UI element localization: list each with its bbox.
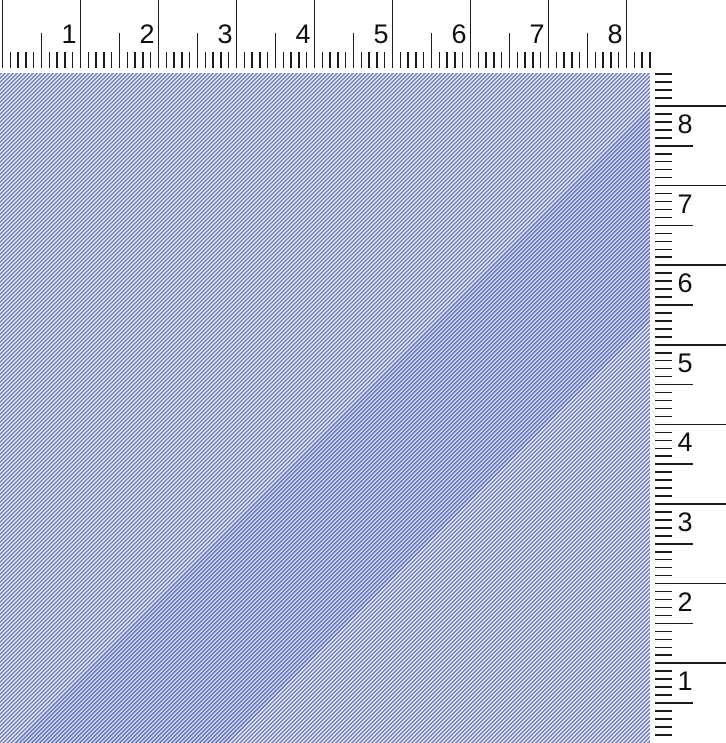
- horizontal-ruler-tick: [610, 52, 612, 68]
- vertical-ruler-tick: [655, 360, 672, 362]
- vertical-ruler-tick: [655, 615, 672, 617]
- vertical-ruler-tick: [655, 288, 672, 290]
- vertical-ruler-tick: [655, 551, 672, 553]
- vertical-ruler-tick: [655, 487, 672, 489]
- horizontal-ruler-number-6: 6: [422, 20, 467, 48]
- vertical-ruler-tick: [655, 121, 672, 123]
- horizontal-ruler-tick: [454, 52, 456, 68]
- horizontal-ruler-tick: [618, 52, 620, 68]
- horizontal-ruler-tick: [524, 52, 526, 68]
- vertical-ruler-tick: [655, 718, 672, 720]
- horizontal-ruler-tick: [158, 0, 160, 68]
- vertical-ruler-tick: [655, 352, 672, 354]
- horizontal-ruler-tick: [251, 52, 253, 68]
- vertical-ruler-tick: [655, 97, 672, 99]
- screen: 12345678 87654321: [0, 0, 726, 743]
- horizontal-ruler-tick: [556, 52, 558, 68]
- vertical-ruler-tick: [655, 463, 693, 465]
- horizontal-ruler-tick: [259, 52, 261, 68]
- horizontal-ruler-tick: [166, 52, 168, 68]
- horizontal-ruler-tick: [361, 52, 363, 68]
- vertical-ruler-tick: [655, 249, 672, 251]
- horizontal-ruler-tick: [345, 52, 347, 68]
- horizontal-ruler-tick: [563, 52, 565, 68]
- horizontal-ruler-tick: [111, 52, 113, 68]
- horizontal-ruler-tick: [337, 52, 339, 68]
- vertical-ruler-number-6: 6: [671, 269, 699, 297]
- vertical-ruler-tick: [655, 272, 672, 274]
- vertical-ruler-tick: [655, 256, 672, 258]
- vertical-ruler-tick: [655, 503, 726, 505]
- vertical-ruler-tick: [655, 694, 672, 696]
- vertical-ruler-tick: [655, 567, 672, 569]
- horizontal-ruler-tick: [462, 52, 464, 68]
- vertical-ruler-tick: [655, 368, 672, 370]
- vertical-ruler-tick: [655, 137, 672, 139]
- horizontal-ruler-tick: [80, 0, 82, 68]
- vertical-ruler-tick: [655, 599, 672, 601]
- vertical-ruler-tick: [655, 440, 672, 442]
- horizontal-ruler-tick: [548, 0, 550, 68]
- vertical-ruler-tick: [655, 328, 672, 330]
- vertical-ruler-tick: [655, 670, 672, 672]
- vertical-ruler-tick: [655, 710, 672, 712]
- horizontal-ruler-tick: [641, 52, 643, 68]
- vertical-ruler-tick: [655, 105, 726, 107]
- horizontal-ruler-tick: [439, 52, 441, 68]
- vertical-ruler-tick: [655, 432, 672, 434]
- horizontal-ruler-tick: [283, 52, 285, 68]
- vertical-ruler-tick: [655, 217, 672, 219]
- vertical-ruler-number-1: 1: [671, 667, 699, 695]
- vertical-ruler-tick: [655, 654, 672, 656]
- horizontal-ruler-tick: [423, 52, 425, 68]
- vertical-ruler-tick: [655, 448, 672, 450]
- vertical-ruler-tick: [655, 153, 672, 155]
- horizontal-ruler-number-1: 1: [32, 20, 77, 48]
- horizontal-ruler-tick: [173, 52, 175, 68]
- vertical-ruler-tick: [655, 734, 672, 736]
- vertical-ruler-number-5: 5: [671, 349, 699, 377]
- horizontal-ruler-tick: [220, 52, 222, 68]
- vertical-ruler-tick: [655, 209, 672, 211]
- vertical-ruler-tick: [655, 233, 672, 235]
- horizontal-ruler-tick: [56, 52, 58, 68]
- vertical-ruler-number-7: 7: [671, 190, 699, 218]
- horizontal-ruler-number-8: 8: [578, 20, 623, 48]
- horizontal-ruler-tick: [189, 52, 191, 68]
- horizontal-ruler-tick: [49, 52, 51, 68]
- horizontal-ruler-tick: [33, 52, 35, 68]
- horizontal-ruler-tick: [134, 52, 136, 68]
- vertical-ruler-tick: [655, 639, 672, 641]
- horizontal-ruler-number-2: 2: [110, 20, 155, 48]
- horizontal-ruler-tick: [244, 52, 246, 68]
- vertical-ruler-tick: [655, 392, 672, 394]
- horizontal-ruler-tick: [306, 52, 308, 68]
- horizontal-ruler-tick: [571, 52, 573, 68]
- vertical-ruler-tick: [655, 400, 672, 402]
- vertical-ruler-tick: [655, 201, 672, 203]
- horizontal-ruler-tick: [64, 52, 66, 68]
- vertical-ruler-tick: [655, 280, 672, 282]
- horizontal-ruler-tick: [150, 52, 152, 68]
- horizontal-ruler-tick: [236, 0, 238, 68]
- horizontal-ruler-tick: [501, 52, 503, 68]
- vertical-ruler-tick: [655, 264, 726, 266]
- horizontal-ruler-tick: [228, 52, 230, 68]
- horizontal-ruler-tick: [384, 52, 386, 68]
- vertical-ruler-tick: [655, 471, 672, 473]
- vertical-ruler-number-4: 4: [671, 428, 699, 456]
- vertical-ruler-tick: [655, 455, 672, 457]
- vertical-ruler-tick: [655, 686, 672, 688]
- horizontal-ruler-tick: [205, 52, 207, 68]
- horizontal-ruler: 12345678: [0, 0, 726, 73]
- vertical-ruler-tick: [655, 81, 672, 83]
- horizontal-ruler-tick: [407, 52, 409, 68]
- vertical-ruler-tick: [655, 631, 672, 633]
- horizontal-ruler-number-7: 7: [500, 20, 545, 48]
- horizontal-ruler-tick: [485, 52, 487, 68]
- vertical-ruler-tick: [655, 145, 693, 147]
- vertical-ruler-tick: [655, 623, 693, 625]
- vertical-ruler-tick: [655, 177, 672, 179]
- vertical-ruler-tick: [655, 726, 672, 728]
- vertical-ruler-tick: [655, 479, 672, 481]
- vertical-ruler-tick: [655, 225, 693, 227]
- horizontal-ruler-tick: [17, 52, 19, 68]
- vertical-ruler-tick: [655, 408, 672, 410]
- vertical-ruler-tick: [655, 678, 672, 680]
- horizontal-ruler-tick: [649, 52, 651, 68]
- horizontal-ruler-tick: [25, 52, 27, 68]
- vertical-ruler-tick: [655, 169, 672, 171]
- vertical-ruler-tick: [655, 304, 693, 306]
- vertical-ruler-tick: [655, 320, 672, 322]
- vertical-ruler-tick: [655, 73, 672, 75]
- vertical-ruler-tick: [655, 575, 672, 577]
- horizontal-ruler-tick: [329, 52, 331, 68]
- vertical-ruler-tick: [655, 535, 672, 537]
- vertical-ruler-tick: [655, 495, 672, 497]
- vertical-ruler-tick: [655, 336, 672, 338]
- vertical-ruler-tick: [655, 185, 726, 187]
- vertical-ruler-tick: [655, 376, 672, 378]
- horizontal-ruler-tick: [517, 52, 519, 68]
- horizontal-ruler-tick: [95, 52, 97, 68]
- vertical-ruler-tick: [655, 113, 672, 115]
- horizontal-ruler-tick: [446, 52, 448, 68]
- horizontal-ruler-tick: [314, 0, 316, 68]
- horizontal-ruler-tick: [595, 52, 597, 68]
- vertical-ruler-tick: [655, 543, 693, 545]
- vertical-ruler-tick: [655, 647, 672, 649]
- horizontal-ruler-tick: [470, 0, 472, 68]
- horizontal-ruler-number-4: 4: [266, 20, 311, 48]
- fabric-pattern-canvas: [0, 73, 650, 743]
- horizontal-ruler-tick: [267, 52, 269, 68]
- vertical-ruler-tick: [655, 312, 672, 314]
- horizontal-ruler-tick: [392, 0, 394, 68]
- vertical-ruler-tick: [655, 424, 726, 426]
- horizontal-ruler-tick: [88, 52, 90, 68]
- horizontal-ruler-tick: [103, 52, 105, 68]
- horizontal-ruler-tick: [322, 52, 324, 68]
- vertical-ruler-tick: [655, 519, 672, 521]
- vertical-ruler-tick: [655, 583, 726, 585]
- vertical-ruler-tick: [655, 344, 726, 346]
- horizontal-ruler-tick: [376, 52, 378, 68]
- horizontal-ruler-tick: [181, 52, 183, 68]
- horizontal-ruler-tick: [532, 52, 534, 68]
- horizontal-ruler-tick: [626, 0, 628, 68]
- vertical-ruler-tick: [655, 416, 672, 418]
- horizontal-ruler-tick: [634, 52, 636, 68]
- horizontal-ruler-tick: [540, 52, 542, 68]
- horizontal-ruler-tick: [142, 52, 144, 68]
- vertical-ruler-number-3: 3: [671, 508, 699, 536]
- horizontal-ruler-number-5: 5: [344, 20, 389, 48]
- vertical-ruler-tick: [655, 193, 672, 195]
- vertical-ruler-tick: [655, 384, 693, 386]
- horizontal-ruler-tick: [368, 52, 370, 68]
- vertical-ruler-tick: [655, 607, 672, 609]
- horizontal-ruler-tick: [415, 52, 417, 68]
- horizontal-ruler-tick: [298, 52, 300, 68]
- horizontal-ruler-tick: [127, 52, 129, 68]
- horizontal-ruler-tick: [72, 52, 74, 68]
- vertical-ruler: 87654321: [650, 73, 726, 743]
- horizontal-ruler-tick: [2, 0, 4, 68]
- vertical-ruler-tick: [655, 296, 672, 298]
- horizontal-ruler-tick: [493, 52, 495, 68]
- horizontal-ruler-tick: [478, 52, 480, 68]
- vertical-ruler-number-8: 8: [671, 110, 699, 138]
- vertical-ruler-tick: [655, 161, 672, 163]
- horizontal-ruler-tick: [579, 52, 581, 68]
- horizontal-ruler-number-3: 3: [188, 20, 233, 48]
- vertical-ruler-tick: [655, 559, 672, 561]
- vertical-ruler-tick: [655, 702, 693, 704]
- vertical-ruler-tick: [655, 662, 726, 664]
- vertical-ruler-tick: [655, 241, 672, 243]
- horizontal-ruler-tick: [290, 52, 292, 68]
- vertical-ruler-tick: [655, 511, 672, 513]
- horizontal-ruler-tick: [400, 52, 402, 68]
- horizontal-ruler-tick: [10, 52, 12, 68]
- vertical-ruler-number-2: 2: [671, 588, 699, 616]
- horizontal-ruler-tick: [212, 52, 214, 68]
- vertical-ruler-tick: [655, 591, 672, 593]
- vertical-ruler-tick: [655, 527, 672, 529]
- vertical-ruler-tick: [655, 129, 672, 131]
- vertical-ruler-tick: [655, 89, 672, 91]
- horizontal-ruler-tick: [602, 52, 604, 68]
